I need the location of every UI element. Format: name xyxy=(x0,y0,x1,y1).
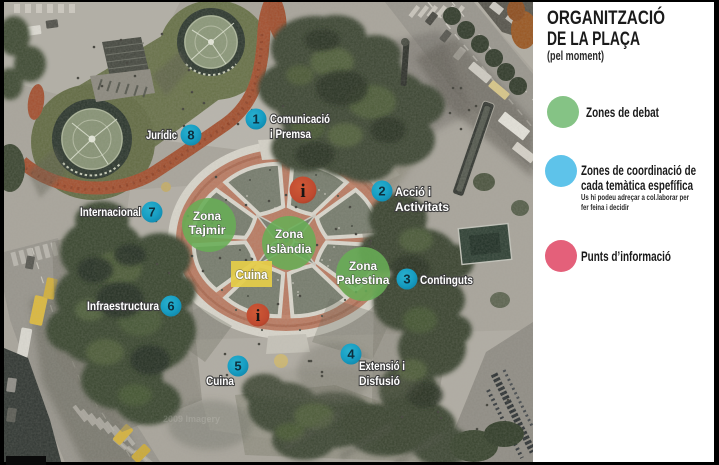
svg-text:(pel moment): (pel moment) xyxy=(547,49,604,63)
svg-text:7: 7 xyxy=(148,205,155,220)
svg-text:i: i xyxy=(300,181,305,202)
svg-text:Cuina: Cuina xyxy=(206,376,235,388)
svg-text:Palestina: Palestina xyxy=(337,273,390,287)
svg-text:i Premsa: i Premsa xyxy=(270,129,312,141)
svg-text:fer feina i decidir: fer feina i decidir xyxy=(581,202,629,212)
svg-text:Zona: Zona xyxy=(349,259,377,273)
svg-text:8: 8 xyxy=(187,128,194,143)
svg-text:Comunicació: Comunicació xyxy=(270,114,330,126)
svg-text:ORGANITZACIÓ: ORGANITZACIÓ xyxy=(547,7,665,29)
svg-text:6: 6 xyxy=(167,299,174,314)
svg-text:Activitats: Activitats xyxy=(395,202,449,214)
svg-text:Jurídic: Jurídic xyxy=(146,130,177,142)
svg-text:Disfusió: Disfusió xyxy=(359,376,400,388)
svg-text:5: 5 xyxy=(234,359,241,374)
svg-text:2009 Imagery: 2009 Imagery xyxy=(163,414,220,424)
svg-text:Zona: Zona xyxy=(275,227,303,241)
svg-text:Cuina: Cuina xyxy=(236,267,269,282)
svg-text:Islàndia: Islàndia xyxy=(267,242,312,256)
svg-text:cada temàtica espefífica: cada temàtica espefífica xyxy=(581,177,693,193)
svg-text:Acció i: Acció i xyxy=(395,187,431,199)
svg-text:2: 2 xyxy=(378,184,385,199)
svg-text:Continguts: Continguts xyxy=(420,275,473,287)
svg-text:4: 4 xyxy=(347,347,355,362)
svg-text:Zones de coordinació de: Zones de coordinació de xyxy=(581,162,696,178)
svg-text:Tajmir: Tajmir xyxy=(189,223,226,237)
svg-text:Punts d’informació: Punts d’informació xyxy=(581,248,671,264)
svg-text:DE LA PLAÇA: DE LA PLAÇA xyxy=(547,29,640,50)
svg-text:Internacional: Internacional xyxy=(80,207,141,219)
svg-text:i: i xyxy=(256,306,261,325)
svg-text:1: 1 xyxy=(252,112,259,127)
svg-text:Zones de debat: Zones de debat xyxy=(586,104,659,120)
svg-text:3: 3 xyxy=(403,272,410,287)
svg-text:Zona: Zona xyxy=(193,209,221,223)
svg-text:Us hi podeu adreçar a col.labo: Us hi podeu adreçar a col.laborar per xyxy=(581,192,689,202)
svg-text:Infraestructura: Infraestructura xyxy=(87,301,160,313)
svg-text:Extensió i: Extensió i xyxy=(359,361,405,373)
